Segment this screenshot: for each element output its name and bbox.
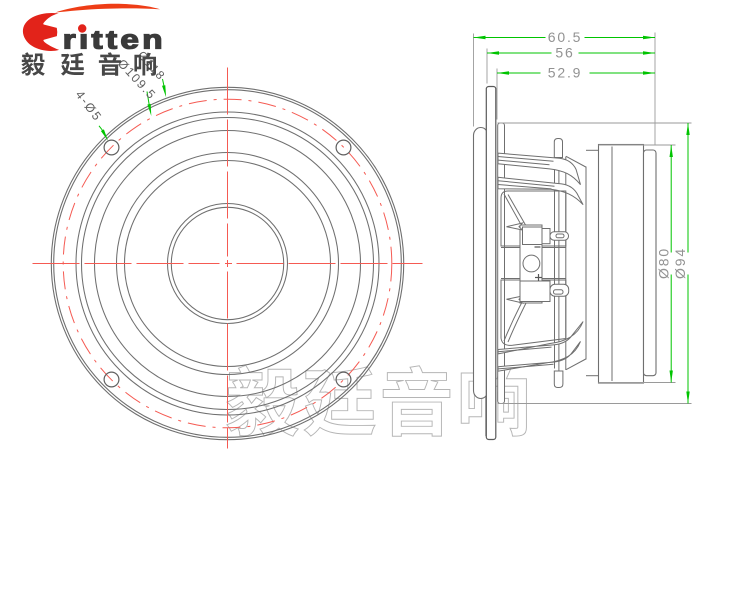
svg-text:4-Ø5: 4-Ø5 — [73, 88, 105, 125]
svg-text:Ø80: Ø80 — [656, 247, 672, 279]
svg-text:52.9: 52.9 — [548, 65, 582, 81]
svg-text:rıtten: rıtten — [63, 26, 166, 55]
svg-text:Ø94: Ø94 — [672, 247, 688, 279]
svg-text:56: 56 — [555, 45, 574, 61]
svg-text:60.5: 60.5 — [548, 29, 582, 45]
